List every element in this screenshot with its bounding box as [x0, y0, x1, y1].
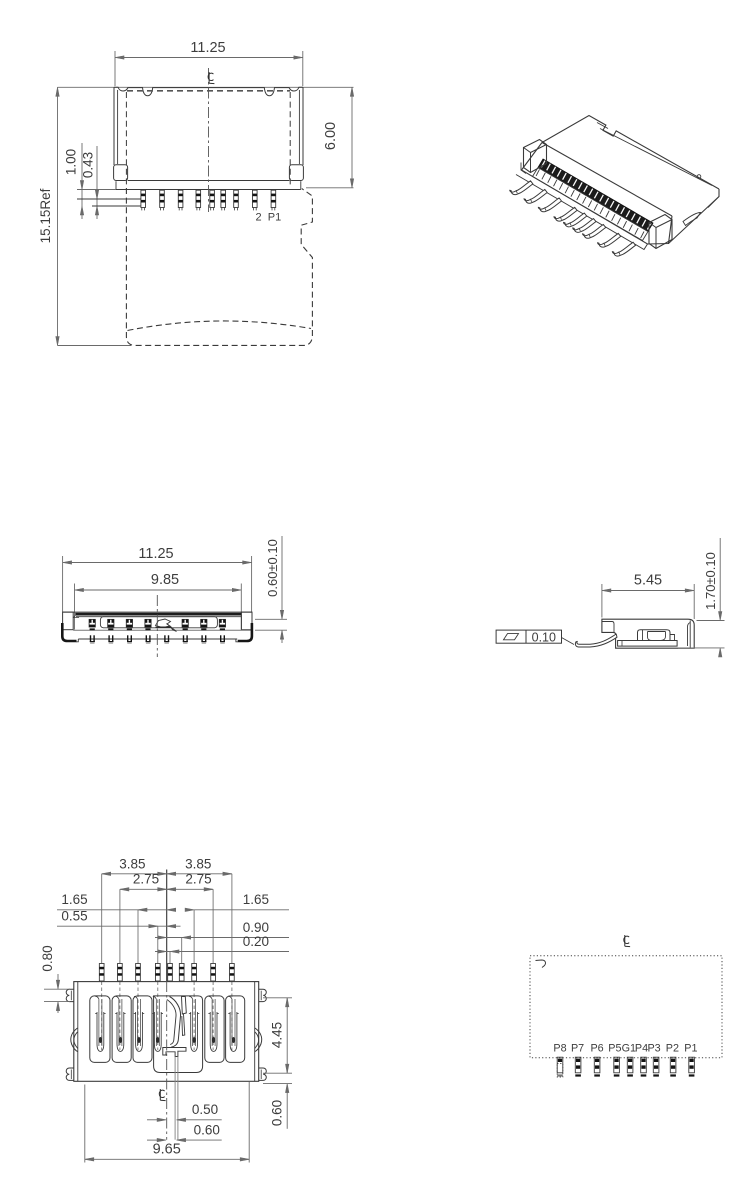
svg-text:G1: G1	[622, 1043, 636, 1055]
svg-text:1.70±0.10: 1.70±0.10	[703, 552, 718, 610]
svg-text:6.00: 6.00	[323, 122, 339, 150]
svg-text:0.90: 0.90	[243, 920, 269, 935]
svg-text:P1: P1	[684, 1043, 697, 1055]
svg-text:3.85: 3.85	[119, 856, 145, 871]
svg-text:P1: P1	[268, 212, 281, 224]
svg-text:0.10: 0.10	[532, 630, 556, 644]
svg-text:0.55: 0.55	[61, 909, 87, 924]
svg-text:P7: P7	[571, 1043, 584, 1055]
svg-text:2: 2	[255, 212, 261, 224]
svg-text:0.60: 0.60	[194, 1123, 220, 1138]
svg-text:11.25: 11.25	[190, 40, 225, 56]
svg-text:0.60: 0.60	[270, 1100, 285, 1126]
svg-text:0.80: 0.80	[40, 945, 55, 971]
svg-text:9.85: 9.85	[151, 572, 179, 588]
svg-text:P4: P4	[635, 1043, 648, 1055]
svg-text:0.50: 0.50	[192, 1102, 218, 1117]
svg-text:2.75: 2.75	[133, 872, 159, 887]
svg-text:0.60±0.10: 0.60±0.10	[265, 539, 280, 597]
svg-text:15.15Ref: 15.15Ref	[38, 188, 53, 243]
svg-text:11.25: 11.25	[138, 546, 173, 562]
svg-text:4.45: 4.45	[270, 1022, 285, 1048]
svg-text:P3: P3	[647, 1043, 660, 1055]
svg-text:P5: P5	[608, 1043, 621, 1055]
svg-text:1.00: 1.00	[64, 149, 79, 175]
svg-text:5.45: 5.45	[634, 573, 662, 589]
svg-text:0.20: 0.20	[243, 934, 269, 949]
svg-text:P8: P8	[553, 1043, 566, 1055]
svg-text:P2: P2	[666, 1043, 679, 1055]
svg-text:1.65: 1.65	[61, 892, 87, 907]
svg-text:3.85: 3.85	[185, 856, 211, 871]
svg-text:0.43: 0.43	[81, 152, 96, 178]
svg-text:1.65: 1.65	[243, 892, 269, 907]
svg-text:9.65: 9.65	[153, 1141, 181, 1157]
svg-text:2.75: 2.75	[185, 872, 211, 887]
svg-text:P6: P6	[590, 1043, 603, 1055]
